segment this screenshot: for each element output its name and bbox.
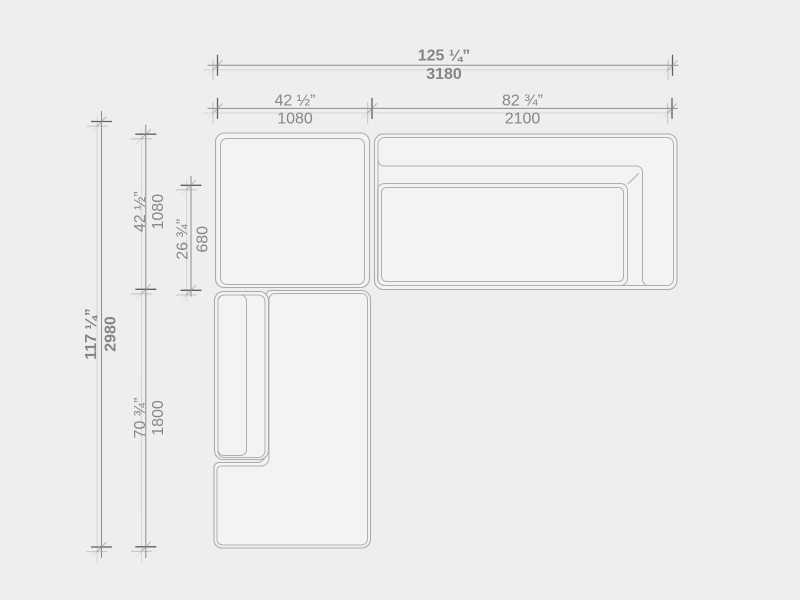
svg-text:1800: 1800 [150,400,167,436]
svg-text:680: 680 [195,226,212,253]
svg-text:1080: 1080 [150,194,167,230]
svg-text:2100: 2100 [505,111,541,128]
svg-text:3180: 3180 [426,66,462,83]
svg-text:26 ¾”: 26 ¾” [175,219,192,260]
svg-text:117 ¼”: 117 ¼” [83,308,100,360]
svg-text:2980: 2980 [103,316,120,352]
svg-text:42 ½”: 42 ½” [132,191,149,232]
svg-text:125 ¼”: 125 ¼” [418,48,470,65]
svg-text:1080: 1080 [277,111,313,128]
svg-text:82 ¾”: 82 ¾” [502,93,543,110]
svg-text:42 ½”: 42 ½” [275,93,316,110]
svg-text:70 ¾”: 70 ¾” [132,398,149,439]
